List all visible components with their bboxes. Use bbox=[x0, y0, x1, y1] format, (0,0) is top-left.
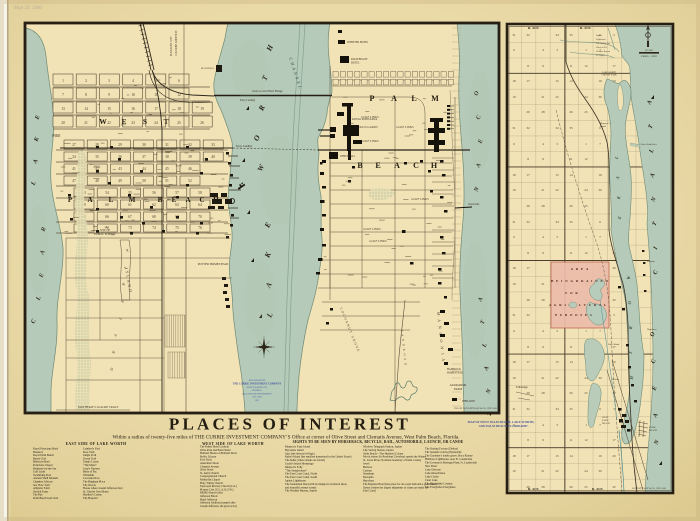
svg-text:28: 28 bbox=[541, 110, 545, 114]
svg-text:1907.: 1907. bbox=[522, 424, 529, 428]
svg-text:66: 66 bbox=[105, 215, 109, 219]
svg-text:17: 17 bbox=[526, 79, 530, 83]
svg-text:GOLF LINKS: GOLF LINKS bbox=[361, 139, 379, 143]
svg-text:31: 31 bbox=[512, 407, 516, 411]
svg-text:28: 28 bbox=[541, 204, 545, 208]
svg-text:15: 15 bbox=[107, 107, 111, 111]
svg-text:25: 25 bbox=[584, 485, 588, 489]
svg-text:22: 22 bbox=[555, 376, 559, 380]
svg-text:40: 40 bbox=[211, 155, 215, 159]
svg-text:THE CURRIE INVESTMENT COMPANY: THE CURRIE INVESTMENT COMPANY bbox=[233, 383, 282, 386]
svg-text:30: 30 bbox=[598, 95, 602, 99]
svg-text:48: 48 bbox=[95, 179, 99, 183]
svg-text:SIGHTS TO BE SEEN BY HORSEBACK: SIGHTS TO BE SEEN BY HORSEBACK, BICYCLE,… bbox=[293, 440, 464, 444]
svg-text:19: 19 bbox=[512, 95, 516, 99]
svg-text:2: 2 bbox=[85, 79, 87, 83]
svg-text:26: 26 bbox=[569, 110, 573, 114]
svg-text:The Everglades Everglades: The Everglades Everglades bbox=[425, 486, 456, 489]
svg-text:20: 20 bbox=[61, 121, 65, 125]
svg-text:A R E A: A R E A bbox=[571, 267, 589, 271]
svg-text:19: 19 bbox=[598, 79, 602, 83]
svg-text:L: L bbox=[411, 94, 416, 103]
svg-text:P: P bbox=[370, 94, 375, 103]
svg-text:HOMESTEAD: HOMESTEAD bbox=[447, 371, 463, 374]
svg-text:MAP ISSUED BY: MAP ISSUED BY bbox=[249, 379, 266, 382]
svg-text:WEBSTER HOTEL: WEBSTER HOTEL bbox=[347, 41, 369, 44]
svg-text:27: 27 bbox=[72, 143, 76, 147]
svg-text:34: 34 bbox=[555, 126, 559, 130]
svg-text:Lighthouse: Lighthouse bbox=[596, 38, 606, 41]
svg-text:14: 14 bbox=[569, 173, 573, 177]
svg-text:30: 30 bbox=[598, 469, 602, 473]
svg-text:21: 21 bbox=[541, 376, 545, 380]
svg-text:21: 21 bbox=[541, 188, 545, 192]
svg-text:1: 1 bbox=[62, 79, 64, 83]
svg-text:17: 17 bbox=[526, 266, 530, 270]
svg-text:23: 23 bbox=[131, 121, 135, 125]
svg-text:The Hospital: The Hospital bbox=[83, 497, 98, 500]
svg-text:AND PALM BEACH, FLORIDA.: AND PALM BEACH, FLORIDA. bbox=[479, 424, 524, 428]
svg-text:Jupiter: Jupiter bbox=[596, 35, 602, 37]
svg-text:31: 31 bbox=[512, 33, 516, 37]
svg-text:28: 28 bbox=[541, 298, 545, 302]
svg-text:73: 73 bbox=[128, 226, 132, 230]
svg-text:75: 75 bbox=[175, 226, 179, 230]
svg-text:19: 19 bbox=[512, 469, 516, 473]
svg-text:76: 76 bbox=[198, 226, 202, 230]
svg-text:19: 19 bbox=[598, 454, 602, 458]
svg-text:Lantana: Lantana bbox=[647, 260, 656, 263]
svg-text:A: A bbox=[391, 94, 397, 103]
svg-text:17: 17 bbox=[612, 64, 616, 68]
svg-text:19: 19 bbox=[512, 376, 516, 380]
svg-text:26: 26 bbox=[569, 204, 573, 208]
svg-text:14: 14 bbox=[569, 360, 573, 364]
svg-text:E: E bbox=[375, 161, 380, 170]
svg-text:18: 18 bbox=[512, 454, 516, 458]
svg-text:18: 18 bbox=[512, 173, 516, 177]
svg-text:30: 30 bbox=[598, 188, 602, 192]
svg-text:RAND MºNALLY & CO., CHICAGO: RAND MºNALLY & CO., CHICAGO bbox=[632, 487, 666, 490]
svg-text:28: 28 bbox=[541, 391, 545, 395]
svg-text:19: 19 bbox=[512, 188, 516, 192]
svg-text:67: 67 bbox=[128, 215, 132, 219]
svg-text:26: 26 bbox=[569, 485, 573, 489]
svg-text:12: 12 bbox=[584, 64, 588, 68]
svg-text:74: 74 bbox=[152, 226, 156, 230]
svg-text:T: T bbox=[163, 117, 168, 126]
svg-text:51: 51 bbox=[165, 179, 169, 183]
svg-text:M: M bbox=[431, 94, 439, 103]
svg-text:Tallmadge: Tallmadge bbox=[516, 386, 529, 389]
svg-text:26: 26 bbox=[569, 391, 573, 395]
svg-text:57: 57 bbox=[175, 191, 179, 195]
svg-text:Ferry Landing: Ferry Landing bbox=[236, 145, 253, 148]
svg-text:18: 18 bbox=[512, 79, 516, 83]
svg-text:34: 34 bbox=[555, 33, 559, 37]
svg-text:MAGNOLIA: MAGNOLIA bbox=[201, 67, 214, 70]
svg-text:18: 18 bbox=[512, 360, 516, 364]
svg-text:31: 31 bbox=[512, 313, 516, 317]
svg-text:ROYAL POINCIANA: ROYAL POINCIANA bbox=[352, 118, 377, 121]
svg-text:17: 17 bbox=[526, 173, 530, 177]
svg-text:A: A bbox=[185, 196, 190, 204]
svg-text:29: 29 bbox=[526, 298, 530, 302]
svg-text:34: 34 bbox=[555, 220, 559, 224]
svg-text:29: 29 bbox=[526, 110, 530, 114]
svg-text:32: 32 bbox=[612, 298, 616, 302]
svg-text:3: 3 bbox=[108, 79, 110, 83]
svg-text:35: 35 bbox=[569, 126, 573, 130]
svg-text:24: 24 bbox=[154, 121, 158, 125]
svg-text:Wireless Tel.: Wireless Tel. bbox=[596, 47, 608, 49]
svg-text:15: 15 bbox=[555, 79, 559, 83]
svg-text:14: 14 bbox=[569, 79, 573, 83]
svg-text:Ft. Jupiter: Ft. Jupiter bbox=[596, 55, 605, 57]
svg-text:52: 52 bbox=[188, 179, 192, 183]
svg-text:H: H bbox=[431, 161, 438, 170]
svg-text:A: A bbox=[87, 196, 92, 204]
svg-text:25: 25 bbox=[584, 204, 588, 208]
svg-text:32: 32 bbox=[526, 220, 530, 224]
svg-text:SITE OF: SITE OF bbox=[100, 229, 111, 232]
svg-text:Palm Beach Gun Club: Palm Beach Gun Club bbox=[33, 497, 59, 500]
svg-text:30: 30 bbox=[142, 143, 146, 147]
svg-text:37: 37 bbox=[142, 155, 146, 159]
svg-text:54: 54 bbox=[105, 191, 109, 195]
svg-text:21: 21 bbox=[541, 469, 545, 473]
svg-text:S: S bbox=[143, 117, 147, 126]
svg-text:Lake Worth: Lake Worth bbox=[608, 343, 620, 346]
svg-text:14: 14 bbox=[84, 107, 88, 111]
svg-text:GOLF LINKS: GOLF LINKS bbox=[396, 125, 414, 129]
svg-text:24: 24 bbox=[584, 188, 588, 192]
svg-text:Ocean Pier: Ocean Pier bbox=[468, 203, 480, 206]
svg-text:WEST PALM BEACH,: WEST PALM BEACH, bbox=[247, 386, 268, 389]
svg-text:70: 70 bbox=[198, 215, 202, 219]
svg-text:COLORED ADDITION: COLORED ADDITION bbox=[175, 30, 178, 56]
svg-text:21: 21 bbox=[541, 95, 545, 99]
svg-text:Joseph Jefferson, the great ac: Joseph Jefferson, the great actor) bbox=[200, 505, 237, 508]
svg-text:10: 10 bbox=[131, 93, 135, 97]
svg-text:FLORIDA.: FLORIDA. bbox=[252, 389, 262, 392]
svg-text:17: 17 bbox=[154, 107, 158, 111]
svg-text:L: L bbox=[109, 196, 114, 204]
svg-text:A G R I C U L T U R A L: A G R I C U L T U R A L bbox=[549, 303, 607, 307]
svg-text:The Weather Bureau, Jupiter: The Weather Bureau, Jupiter bbox=[285, 490, 317, 493]
svg-text:17: 17 bbox=[612, 438, 616, 442]
svg-text:WHITEHALL: WHITEHALL bbox=[340, 155, 356, 158]
svg-text:LAKE WORTH: LAKE WORTH bbox=[602, 71, 617, 74]
svg-text:15: 15 bbox=[555, 173, 559, 177]
svg-text:OLD GUARDS: OLD GUARDS bbox=[358, 125, 378, 129]
svg-text:11: 11 bbox=[569, 64, 572, 68]
svg-text:6 MILES = 1 INCH: 6 MILES = 1 INCH bbox=[641, 56, 658, 58]
svg-text:St. Lucie River, Northern boun: St. Lucie River, Northern boundary of Da… bbox=[363, 459, 422, 462]
svg-text:19: 19 bbox=[512, 282, 516, 286]
svg-text:BEACH: BEACH bbox=[602, 422, 610, 425]
svg-text:B E I N G D R A I N E D: B E I N G D R A I N E D bbox=[551, 279, 609, 283]
svg-text:EST. 1894: EST. 1894 bbox=[252, 397, 262, 399]
svg-text:B: B bbox=[357, 161, 363, 170]
svg-text:18: 18 bbox=[177, 107, 181, 111]
svg-text:M: M bbox=[129, 196, 136, 204]
svg-text:29: 29 bbox=[118, 143, 122, 147]
svg-text:Map 20. 1906: Map 20. 1906 bbox=[13, 6, 42, 11]
svg-text:P: P bbox=[68, 196, 73, 204]
svg-text:SCALE: SCALE bbox=[645, 49, 653, 52]
svg-text:BEACH: BEACH bbox=[649, 429, 657, 432]
svg-text:PARK: PARK bbox=[51, 134, 61, 138]
svg-text:8: 8 bbox=[85, 93, 87, 97]
svg-text:GOLF LINKS: GOLF LINKS bbox=[369, 239, 387, 243]
svg-text:38: 38 bbox=[165, 155, 169, 159]
svg-text:C: C bbox=[199, 196, 204, 204]
svg-text:COUNTY PARK: COUNTY PARK bbox=[601, 74, 617, 77]
svg-text:39: 39 bbox=[188, 155, 192, 159]
svg-text:25: 25 bbox=[584, 391, 588, 395]
svg-text:E: E bbox=[172, 196, 177, 204]
svg-text:12: 12 bbox=[584, 251, 588, 255]
svg-text:32: 32 bbox=[612, 485, 616, 489]
svg-text:EAST SIDE OF LAKE WORTH: EAST SIDE OF LAKE WORTH bbox=[66, 442, 127, 446]
svg-text:PLACES OF INTEREST: PLACES OF INTEREST bbox=[169, 415, 411, 434]
svg-text:12: 12 bbox=[584, 157, 588, 161]
svg-text:49: 49 bbox=[118, 179, 122, 183]
svg-text:31: 31 bbox=[512, 126, 516, 130]
svg-text:PUBLIC SCHOOL: PUBLIC SCHOOL bbox=[94, 233, 116, 236]
svg-text:56: 56 bbox=[152, 191, 156, 195]
svg-text:17: 17 bbox=[526, 360, 530, 364]
svg-text:HOTEL: HOTEL bbox=[351, 61, 360, 64]
svg-text:31: 31 bbox=[512, 220, 516, 224]
svg-text:34: 34 bbox=[555, 407, 559, 411]
svg-text:22: 22 bbox=[555, 469, 559, 473]
svg-text:C: C bbox=[413, 161, 419, 170]
svg-text:31: 31 bbox=[165, 143, 169, 147]
svg-text:Weather Bureau: Weather Bureau bbox=[596, 51, 611, 53]
svg-text:21: 21 bbox=[541, 282, 545, 286]
svg-text:35: 35 bbox=[569, 407, 573, 411]
svg-text:14: 14 bbox=[569, 454, 573, 458]
svg-text:15: 15 bbox=[555, 360, 559, 364]
svg-text:18: 18 bbox=[512, 266, 516, 270]
svg-text:REAL ESTATE INVESTMENTS: REAL ESTATE INVESTMENTS bbox=[242, 392, 272, 395]
svg-text:25: 25 bbox=[177, 121, 181, 125]
svg-text:4: 4 bbox=[132, 79, 134, 83]
svg-text:30: 30 bbox=[598, 376, 602, 380]
svg-text:FARM: FARM bbox=[454, 387, 463, 391]
svg-text:6: 6 bbox=[178, 79, 180, 83]
svg-text:11: 11 bbox=[569, 438, 572, 442]
svg-text:45: 45 bbox=[165, 167, 169, 171]
svg-text:16: 16 bbox=[131, 107, 135, 111]
svg-text:PLEASANT CITY: PLEASANT CITY bbox=[170, 36, 173, 56]
svg-text:41: 41 bbox=[72, 167, 76, 171]
svg-text:MATTHAM’S 20 ACRE TRACT: MATTHAM’S 20 ACRE TRACT bbox=[78, 405, 119, 409]
svg-text:22: 22 bbox=[555, 188, 559, 192]
svg-text:Hypoluxo: Hypoluxo bbox=[647, 328, 657, 331]
svg-text:F O R: F O R bbox=[565, 291, 579, 295]
svg-text:35: 35 bbox=[569, 220, 573, 224]
svg-text:20: 20 bbox=[612, 266, 616, 270]
svg-text:11: 11 bbox=[569, 345, 572, 349]
svg-text:11: 11 bbox=[569, 157, 572, 161]
svg-text:GOLF LINKS: GOLF LINKS bbox=[363, 227, 381, 231]
svg-text:33: 33 bbox=[211, 143, 215, 147]
svg-text:24: 24 bbox=[584, 469, 588, 473]
svg-text:W: W bbox=[99, 117, 107, 126]
svg-text:46: 46 bbox=[188, 167, 192, 171]
svg-text:26: 26 bbox=[200, 121, 204, 125]
svg-text:WHILLDIN: WHILLDIN bbox=[462, 400, 475, 403]
svg-text:A: A bbox=[394, 161, 400, 170]
svg-text:Riviera: Riviera bbox=[612, 378, 620, 381]
svg-text:7: 7 bbox=[62, 93, 64, 97]
svg-text:47: 47 bbox=[72, 179, 76, 183]
svg-text:Life Saving Sta.: Life Saving Sta. bbox=[596, 42, 611, 45]
svg-text:35: 35 bbox=[569, 33, 573, 37]
svg-text:28: 28 bbox=[541, 485, 545, 489]
svg-text:25: 25 bbox=[584, 110, 588, 114]
svg-text:Lake Worth Inlet: Lake Worth Inlet bbox=[641, 144, 657, 146]
svg-text:East Coast): East Coast) bbox=[363, 490, 376, 493]
svg-text:19: 19 bbox=[598, 173, 602, 177]
svg-text:32: 32 bbox=[526, 407, 530, 411]
svg-text:11: 11 bbox=[569, 251, 572, 255]
svg-text:POTTER HOMESTEAD: POTTER HOMESTEAD bbox=[198, 262, 229, 266]
svg-text:GOLF LINKS: GOLF LINKS bbox=[411, 197, 429, 201]
svg-text:22: 22 bbox=[107, 121, 111, 125]
svg-text:P U R P O S E S: P U R P O S E S bbox=[555, 313, 593, 317]
svg-text:32: 32 bbox=[526, 126, 530, 130]
svg-text:15: 15 bbox=[555, 454, 559, 458]
svg-text:29: 29 bbox=[526, 204, 530, 208]
svg-text:32: 32 bbox=[526, 313, 530, 317]
svg-text:35: 35 bbox=[95, 155, 99, 159]
svg-text:12: 12 bbox=[584, 438, 588, 442]
svg-text:ENG. BY RAND MºNALLY & CO., CH: ENG. BY RAND MºNALLY & CO., CHICAGO bbox=[454, 407, 497, 410]
svg-text:58: 58 bbox=[198, 191, 202, 195]
svg-text:32: 32 bbox=[526, 33, 530, 37]
svg-text:34: 34 bbox=[72, 155, 76, 159]
svg-text:68: 68 bbox=[152, 215, 156, 219]
svg-text:13: 13 bbox=[61, 107, 65, 111]
svg-text:9: 9 bbox=[108, 93, 110, 97]
svg-text:43: 43 bbox=[118, 167, 122, 171]
svg-text:50: 50 bbox=[142, 179, 146, 183]
svg-text:22: 22 bbox=[555, 95, 559, 99]
svg-text:Island: Island bbox=[600, 125, 607, 128]
svg-text:19: 19 bbox=[200, 107, 204, 111]
svg-text:17: 17 bbox=[526, 454, 530, 458]
svg-text:20: 20 bbox=[612, 454, 616, 458]
svg-text:21: 21 bbox=[84, 121, 88, 125]
